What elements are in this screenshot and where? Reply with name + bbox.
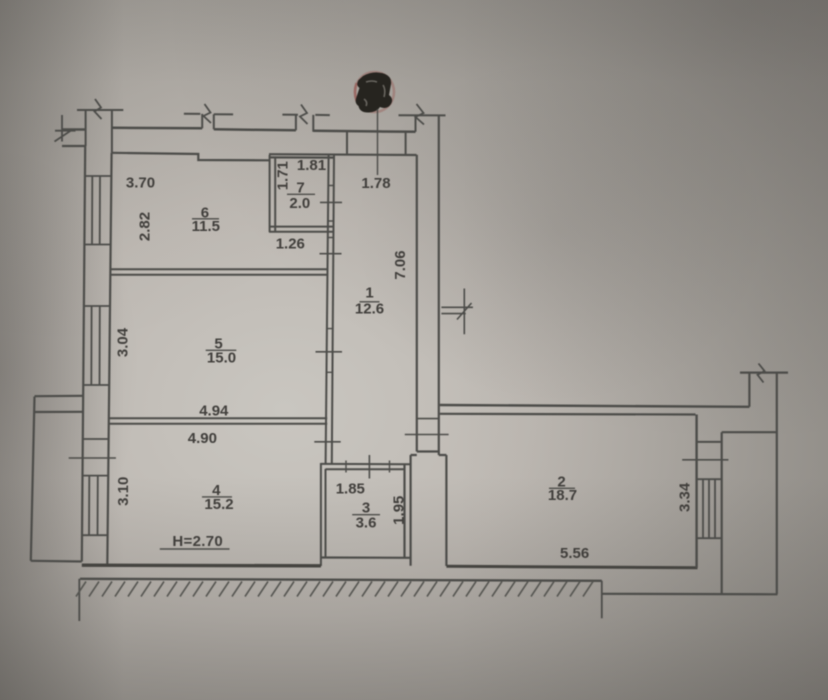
- svg-text:15.0: 15.0: [207, 349, 236, 366]
- svg-text:3.6: 3.6: [356, 514, 377, 531]
- svg-text:11.5: 11.5: [192, 218, 220, 235]
- svg-text:3.04: 3.04: [114, 327, 131, 357]
- svg-text:1.85: 1.85: [336, 481, 365, 498]
- svg-text:1.95: 1.95: [391, 496, 408, 525]
- svg-text:1: 1: [365, 285, 373, 302]
- svg-text:1.26: 1.26: [276, 235, 305, 252]
- svg-text:3.34: 3.34: [677, 482, 694, 512]
- svg-text:4.90: 4.90: [188, 430, 217, 447]
- svg-text:3.10: 3.10: [115, 477, 132, 506]
- svg-text:H=2.70: H=2.70: [172, 533, 223, 550]
- svg-text:4.94: 4.94: [199, 403, 229, 420]
- svg-text:5.56: 5.56: [560, 545, 589, 562]
- svg-text:12.6: 12.6: [355, 301, 384, 318]
- svg-text:3.70: 3.70: [126, 175, 155, 192]
- svg-text:15.2: 15.2: [204, 496, 233, 513]
- svg-text:1.71: 1.71: [275, 161, 292, 190]
- svg-text:18.7: 18.7: [548, 487, 577, 504]
- svg-text:1.81: 1.81: [297, 157, 326, 174]
- svg-text:7.06: 7.06: [392, 250, 409, 279]
- svg-text:2.0: 2.0: [289, 195, 310, 212]
- svg-text:1.78: 1.78: [361, 175, 390, 192]
- svg-text:2.82: 2.82: [137, 212, 154, 241]
